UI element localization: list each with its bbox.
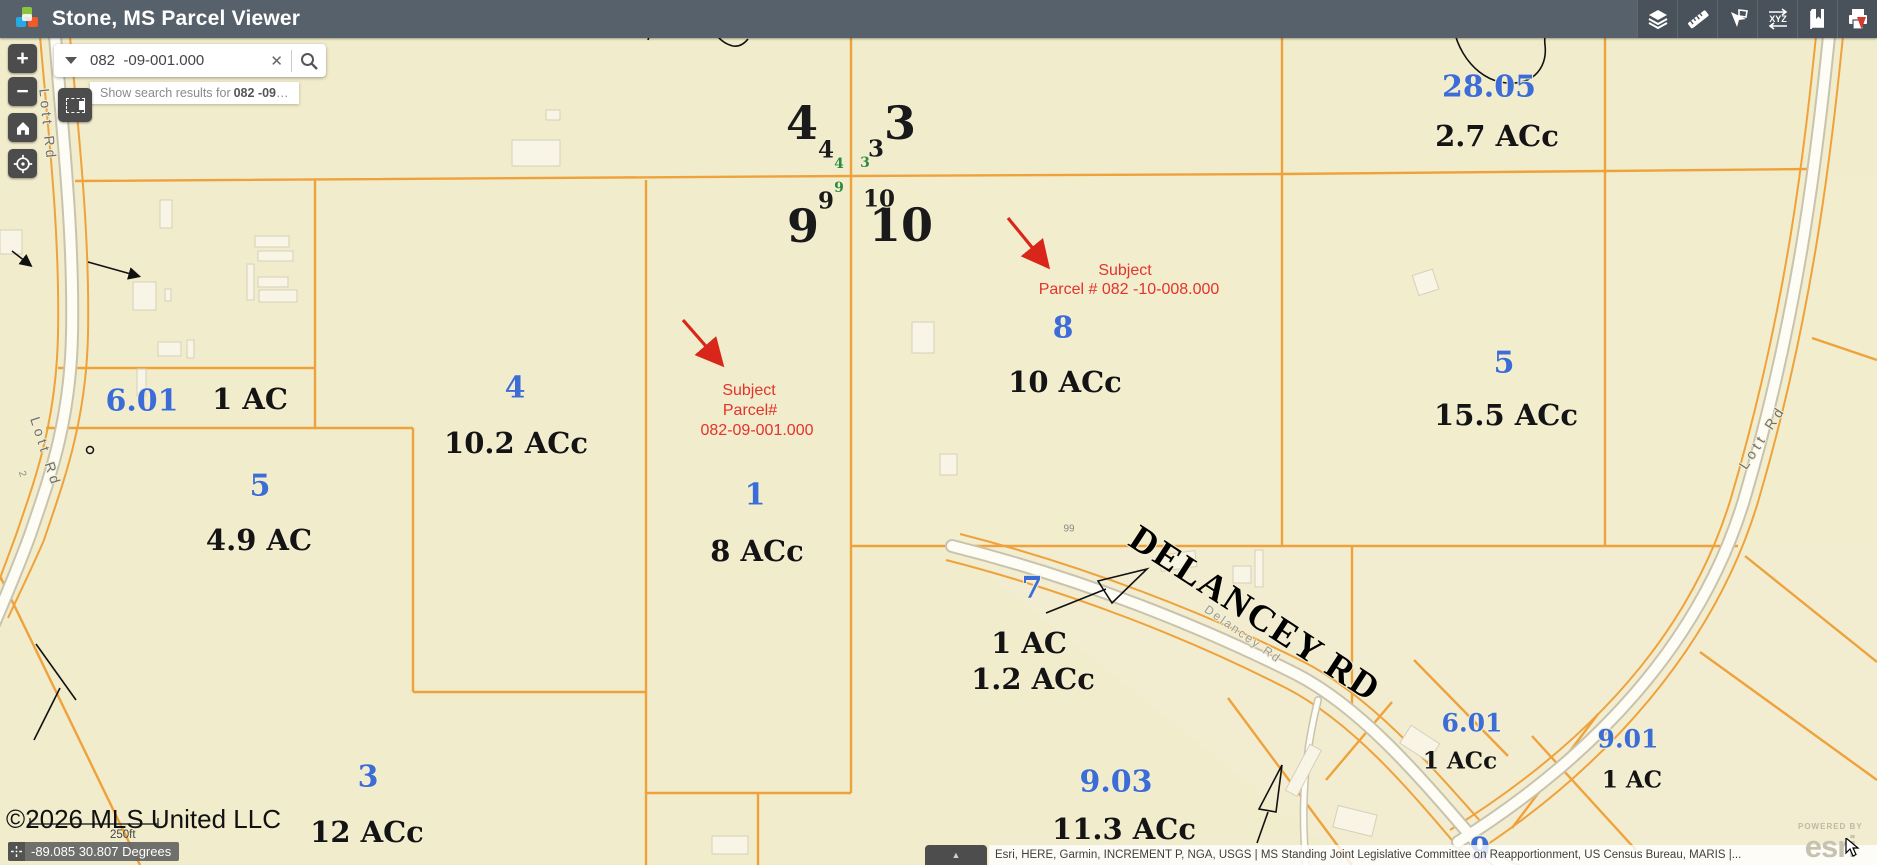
print-icon[interactable] <box>1837 0 1877 38</box>
app-logo-icon <box>14 6 40 32</box>
annotation-arrows <box>12 251 1282 843</box>
roads <box>0 0 1833 865</box>
crosshair-icon[interactable] <box>8 842 25 861</box>
parcel-lines <box>0 0 1877 865</box>
search-widget: ✕ <box>54 44 326 77</box>
parcel-acreage-label: 1 AC <box>212 382 288 416</box>
chevron-down-icon <box>65 57 77 64</box>
parcel-acreage-label: 1 ACc <box>1423 748 1497 775</box>
road-label: Lott Rd <box>1735 402 1788 472</box>
road-label: Delancey Rd <box>1202 602 1284 665</box>
parcel-number-label: 28.05 <box>1442 70 1536 105</box>
parcel-number-label: 3 <box>358 760 379 795</box>
search-suggestion[interactable]: Show search results for 082 -09 … <box>90 82 299 104</box>
app-header: Stone, MS Parcel Viewer <box>0 0 1877 38</box>
locate-button[interactable] <box>8 149 37 178</box>
parcel-acreage-label: 15.5 ACc <box>1434 398 1578 432</box>
coordinate-readout: -89.085 30.807 Degrees <box>31 844 171 859</box>
parcel-number-label: 1 <box>745 478 766 513</box>
parcel-number-label: 8 <box>1053 311 1074 346</box>
parcel-number-label: 5 <box>1494 346 1515 381</box>
parcel-acreage-label: 1 AC <box>991 626 1067 660</box>
road-number-label: 2 <box>16 470 28 479</box>
overview-map-icon <box>66 98 85 113</box>
page-title: Stone, MS Parcel Viewer <box>52 7 300 31</box>
map-label-layer: 439104391043928.052.7 ACc6.011 AC410.2 A… <box>0 0 1877 865</box>
parcel-fills <box>851 176 1877 865</box>
parcel-number-label: 4 <box>505 371 526 406</box>
sketch-icon[interactable] <box>1717 0 1757 38</box>
well-marker <box>87 447 94 454</box>
section-number-label: 9 <box>834 180 844 196</box>
search-icon <box>299 51 319 71</box>
parcel-acreage-label: 10 ACc <box>1008 365 1122 399</box>
subject-parcel-annotation: Parcel # 082 -10-008.000 <box>1039 281 1220 299</box>
subject-parcel-annotation: Subject <box>1098 262 1151 280</box>
road-label: Lott Rd <box>36 88 60 162</box>
parcel-number-label: 6.01 <box>1442 709 1503 738</box>
copyright-watermark: ©2026 MLS United LLC <box>6 804 281 835</box>
parcel-number-label: 9.03 <box>1079 765 1152 800</box>
section-number-label: 9 <box>787 199 819 253</box>
coordinate-bar: -89.085 30.807 Degrees <box>8 842 179 861</box>
layers-icon[interactable] <box>1637 0 1677 38</box>
mouse-cursor-icon <box>1845 838 1862 857</box>
section-number-label: 4 <box>818 137 834 164</box>
parcel-acreage-label: 12 ACc <box>310 815 424 849</box>
bookmarks-icon[interactable] <box>1797 0 1837 38</box>
map-geometry: 250ft <box>0 0 1877 865</box>
parcel-number-label: 7 <box>1022 571 1043 606</box>
parcel-acreage-label: 4.9 AC <box>206 523 312 557</box>
zoom-in-button[interactable]: + <box>8 44 37 73</box>
zoom-out-button[interactable]: − <box>8 77 37 106</box>
suggestion-term: 082 -09 <box>234 86 276 100</box>
subject-parcel-annotation: Parcel# <box>723 402 777 420</box>
home-button[interactable] <box>8 113 37 142</box>
section-number-label: 3 <box>860 155 870 171</box>
parcel-acreage-label: 1.2 ACc <box>971 662 1095 696</box>
creek-lines <box>34 0 1614 740</box>
parcel-acreage-label: 8 ACc <box>710 534 804 568</box>
parcel-acreage-label: 11.3 ACc <box>1052 812 1196 846</box>
svg-text:XYZ: XYZ <box>1769 14 1787 24</box>
parcel-number-label: 6.01 <box>105 384 178 419</box>
search-source-dropdown[interactable] <box>54 44 88 77</box>
locate-icon <box>13 154 33 174</box>
section-number-label: 10 <box>869 198 933 252</box>
map-attribution: Esri, HERE, Garmin, INCREMENT P, NGA, US… <box>989 845 1877 865</box>
overview-map-toggle[interactable] <box>58 88 92 122</box>
subject-arrows <box>683 218 1044 360</box>
header-toolbar: XYZ <box>1637 0 1877 38</box>
section-number-label: 3 <box>884 96 916 150</box>
section-number-label: 9 <box>818 188 834 215</box>
section-number-label: 4 <box>786 96 818 150</box>
coordinates-icon[interactable]: XYZ <box>1757 0 1797 38</box>
home-icon <box>14 119 32 137</box>
parcel-acreage-label: 1 AC <box>1602 767 1662 794</box>
road-number-label: 99 <box>1063 524 1074 535</box>
search-input[interactable] <box>88 51 262 70</box>
clear-search-icon[interactable]: ✕ <box>262 52 291 70</box>
parcel-acreage-label: 2.7 ACc <box>1435 119 1559 153</box>
parcel-acreage-label: 10.2 ACc <box>444 426 588 460</box>
parcel-viewer-app: 250ft 439104391043928.052.7 ACc6.011 AC4… <box>0 0 1877 865</box>
measure-icon[interactable] <box>1677 0 1717 38</box>
subject-parcel-annotation: 082-09-001.000 <box>701 422 814 440</box>
parcel-number-label: 9.01 <box>1598 725 1659 754</box>
road-label: Lott Rd <box>27 415 65 490</box>
section-number-label: 4 <box>834 156 844 172</box>
road-label: DELANCEY RD <box>1121 517 1388 712</box>
suggestion-ellipsis: … <box>276 86 289 100</box>
subject-parcel-annotation: Subject <box>722 382 775 400</box>
section-number-label: 3 <box>868 136 884 163</box>
section-number-label: 10 <box>863 186 895 213</box>
parcel-number-label: 5 <box>250 469 271 504</box>
search-button[interactable] <box>292 44 326 77</box>
suggestion-text: Show search results for <box>100 86 231 100</box>
attribution-expand-tab[interactable]: ▲ <box>925 845 987 865</box>
buildings <box>0 110 1440 854</box>
